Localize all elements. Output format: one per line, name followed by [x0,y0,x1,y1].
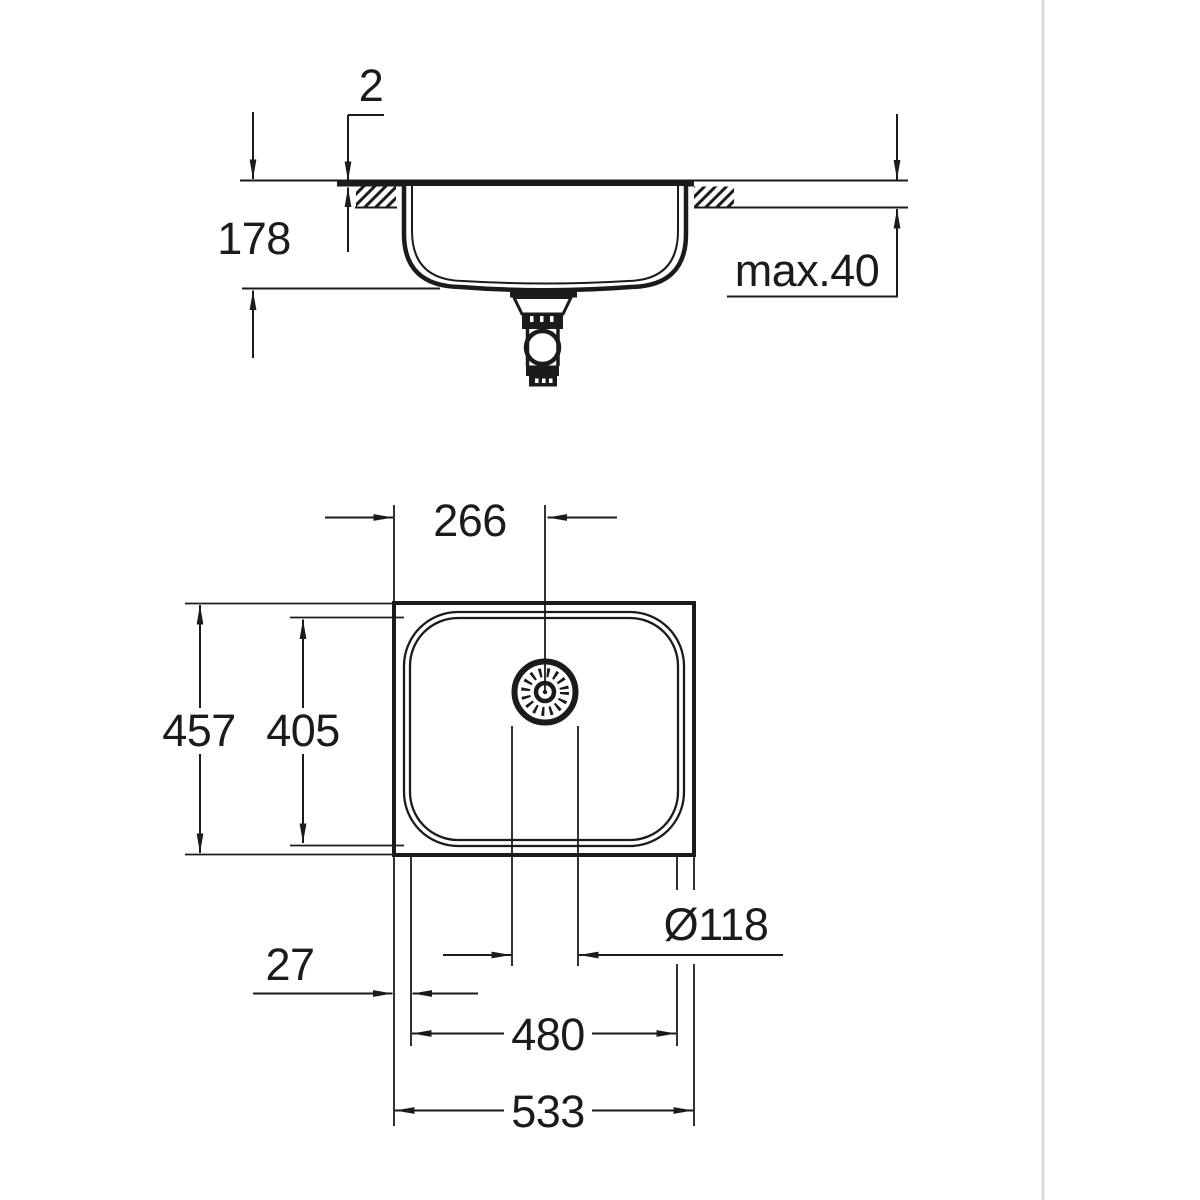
drain-cup [514,298,571,315]
dimension-counter-thickness: max.40 [727,114,898,297]
drain-nut-lower [526,366,559,377]
side-elevation-view: 2 178 max.40 [217,60,908,387]
bowl-outline-inner-plan [410,618,678,840]
countertop-hatch-left [356,187,396,208]
sink-rim-profile [337,180,694,187]
dimension-drain-offset: 266 [325,495,617,546]
dimension-bowl-inner-depth: 405 [266,620,340,844]
countertop-hatch-right [694,187,734,208]
dimension-overall-depth: 457 [162,605,236,853]
plan-top-view: 266 457 405 [162,495,783,1137]
dim-label-bowl-depth: 178 [217,213,291,264]
dim-label-counter-thickness: max.40 [735,245,880,296]
technical-drawing-page: 2 178 max.40 266 [0,0,1200,1200]
dim-label-rim-to-bowl-offset: 27 [265,939,314,990]
dim-label-rim-height: 2 [359,60,384,111]
dimension-rim-to-bowl-offset: 27 [253,939,478,994]
dimension-rim-height: 2 [348,60,384,252]
sink-dimension-diagram: 2 178 max.40 266 [0,0,1200,1200]
dimension-overall-width: 533 [395,1086,693,1137]
sink-outer-rim-plan [394,603,694,855]
bowl-outer-profile [404,186,686,290]
dim-label-overall-width: 533 [511,1086,585,1137]
bowl-outline-outer-plan [404,612,684,846]
dim-label-bowl-inner-width: 480 [511,1009,585,1060]
dim-label-bowl-inner-depth: 405 [266,705,340,756]
dimension-drain-diameter: Ø118 [443,899,783,955]
drain-waste-assembly [510,288,577,387]
drain-trap-ring [526,331,559,364]
dim-label-drain-diameter: Ø118 [664,899,769,950]
dim-label-overall-depth: 457 [162,705,236,756]
dimension-bowl-inner-width: 480 [412,1009,676,1060]
dim-label-drain-offset: 266 [433,495,507,546]
